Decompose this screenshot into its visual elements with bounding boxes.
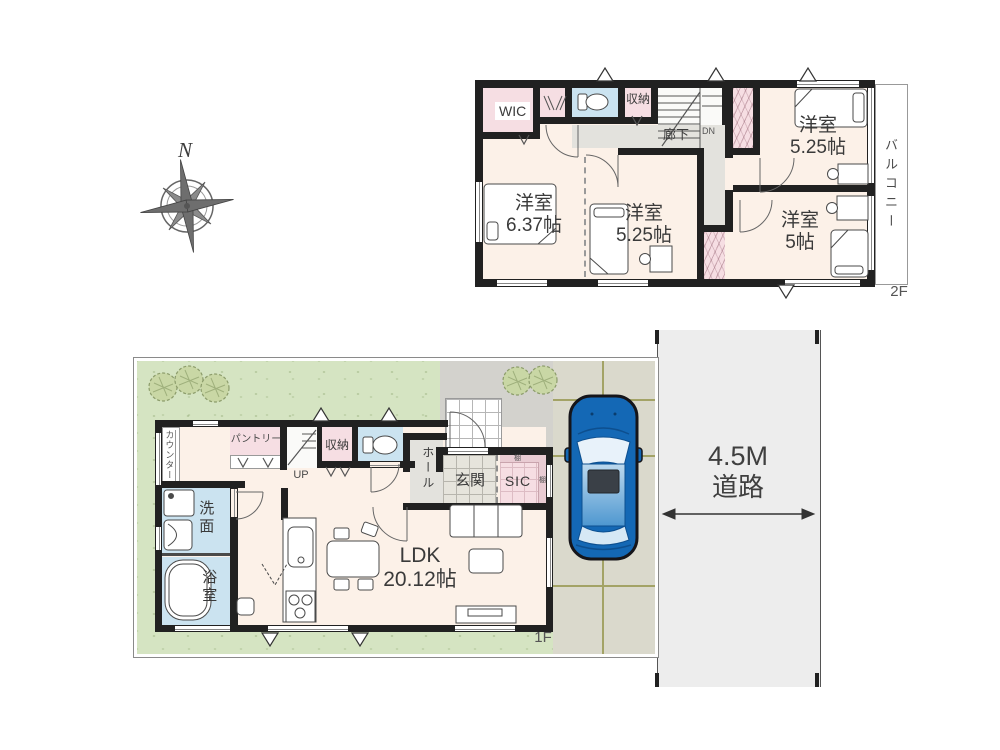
bedroom-middle-area: 5.25帖 bbox=[616, 225, 672, 247]
label-bedroom-right: 洋室 5帖 bbox=[750, 210, 850, 254]
window bbox=[455, 626, 515, 631]
label-balcony: バルコニー bbox=[882, 104, 897, 266]
window bbox=[175, 626, 230, 631]
hallway-2f-vertical bbox=[704, 148, 725, 225]
room-toilet-1f bbox=[357, 427, 403, 461]
label-bedroom-left: 洋室 6.37帖 bbox=[479, 193, 589, 237]
bedroom-top-right-area: 5.25帖 bbox=[790, 137, 846, 159]
label-bedroom-top-right: 洋室 5.25帖 bbox=[768, 115, 868, 159]
wall bbox=[322, 461, 415, 468]
label-wic: WIC bbox=[495, 102, 530, 120]
driveway-joint bbox=[602, 361, 604, 654]
wall bbox=[403, 503, 553, 510]
road-width-label: 4.5M bbox=[688, 441, 788, 472]
label-shelf-side: 棚 bbox=[539, 477, 546, 485]
wall bbox=[475, 132, 533, 139]
bedroom-left-type: 洋室 bbox=[515, 193, 553, 215]
bedroom-middle-type: 洋室 bbox=[625, 203, 663, 225]
label-storage-1f: 収納 bbox=[320, 439, 354, 453]
closet-bottom bbox=[704, 232, 725, 279]
label-hallway: 廊下 bbox=[656, 128, 696, 143]
window bbox=[156, 527, 161, 550]
floorplan-page: 4.5M 道路 カウンター パン bbox=[0, 0, 1000, 750]
label-pantry: パントリー bbox=[230, 434, 282, 446]
door-opening bbox=[448, 448, 488, 454]
wall bbox=[733, 185, 867, 192]
label-shelf-top: 棚 bbox=[514, 455, 521, 463]
wall bbox=[281, 488, 288, 520]
window bbox=[797, 81, 859, 87]
window bbox=[868, 196, 874, 270]
stairs-up-area bbox=[287, 427, 317, 468]
bedroom-right-type: 洋室 bbox=[781, 210, 819, 232]
driveway-joint bbox=[553, 399, 655, 401]
label-stairs-down: DN bbox=[702, 126, 715, 136]
label-bathroom: 浴室 bbox=[200, 569, 217, 611]
pantry-counter bbox=[230, 455, 282, 469]
wall bbox=[436, 447, 443, 472]
wall bbox=[540, 117, 658, 124]
floor1-label: 1F bbox=[528, 629, 558, 646]
window bbox=[268, 626, 348, 631]
label-hall: ホール bbox=[420, 446, 434, 500]
door-opening bbox=[231, 489, 237, 517]
compass-north-label: N bbox=[170, 138, 200, 162]
compass-icon bbox=[134, 153, 240, 259]
label-sic: SIC bbox=[498, 473, 538, 489]
ldk-type: LDK bbox=[400, 544, 441, 568]
window bbox=[156, 433, 161, 485]
room-washroom bbox=[162, 488, 230, 553]
wall bbox=[697, 225, 733, 232]
label-entrance: 玄関 bbox=[443, 472, 497, 489]
road-name-label: 道路 bbox=[688, 473, 788, 503]
wall bbox=[533, 80, 540, 139]
closet-top-right bbox=[733, 88, 753, 148]
entrance-porch bbox=[445, 398, 502, 449]
bedroom-left-area: 6.37帖 bbox=[506, 215, 562, 237]
closet-hanger bbox=[540, 88, 565, 117]
window bbox=[868, 88, 874, 183]
road-tick bbox=[815, 673, 819, 687]
label-counter: カウンター bbox=[164, 430, 174, 488]
window bbox=[497, 280, 547, 286]
room-toilet-2f bbox=[572, 88, 618, 117]
label-bedroom-middle: 洋室 5.25帖 bbox=[594, 203, 694, 247]
window bbox=[193, 421, 218, 426]
road-tick bbox=[655, 673, 659, 687]
window bbox=[785, 280, 860, 286]
label-washroom: 洗面 bbox=[197, 500, 214, 542]
driveway-joint bbox=[553, 455, 655, 457]
counter-edge-line bbox=[175, 430, 176, 486]
driveway bbox=[553, 361, 655, 654]
door-opening bbox=[370, 462, 400, 467]
wall bbox=[565, 80, 572, 124]
road-tick bbox=[655, 330, 659, 344]
bedroom-top-right-type: 洋室 bbox=[799, 115, 837, 137]
road-strip bbox=[657, 330, 821, 687]
label-stairs-up: UP bbox=[290, 469, 312, 482]
window bbox=[547, 465, 552, 497]
window bbox=[598, 280, 648, 286]
window-sliding bbox=[547, 538, 552, 587]
bath-divider bbox=[162, 553, 230, 556]
wall bbox=[697, 148, 704, 287]
driveway-joint bbox=[553, 585, 655, 587]
label-ldk: LDK 20.12帖 bbox=[350, 544, 490, 592]
wall bbox=[403, 433, 410, 472]
bedroom-right-area: 5帖 bbox=[785, 232, 815, 254]
label-storage-2f: 収納 bbox=[621, 93, 655, 107]
road-tick bbox=[815, 330, 819, 344]
wall bbox=[725, 88, 733, 158]
room-bathroom bbox=[162, 557, 230, 625]
wall bbox=[753, 88, 760, 155]
ldk-area: 20.12帖 bbox=[383, 568, 457, 592]
floor2-label: 2F bbox=[884, 283, 914, 300]
wall bbox=[618, 148, 704, 155]
